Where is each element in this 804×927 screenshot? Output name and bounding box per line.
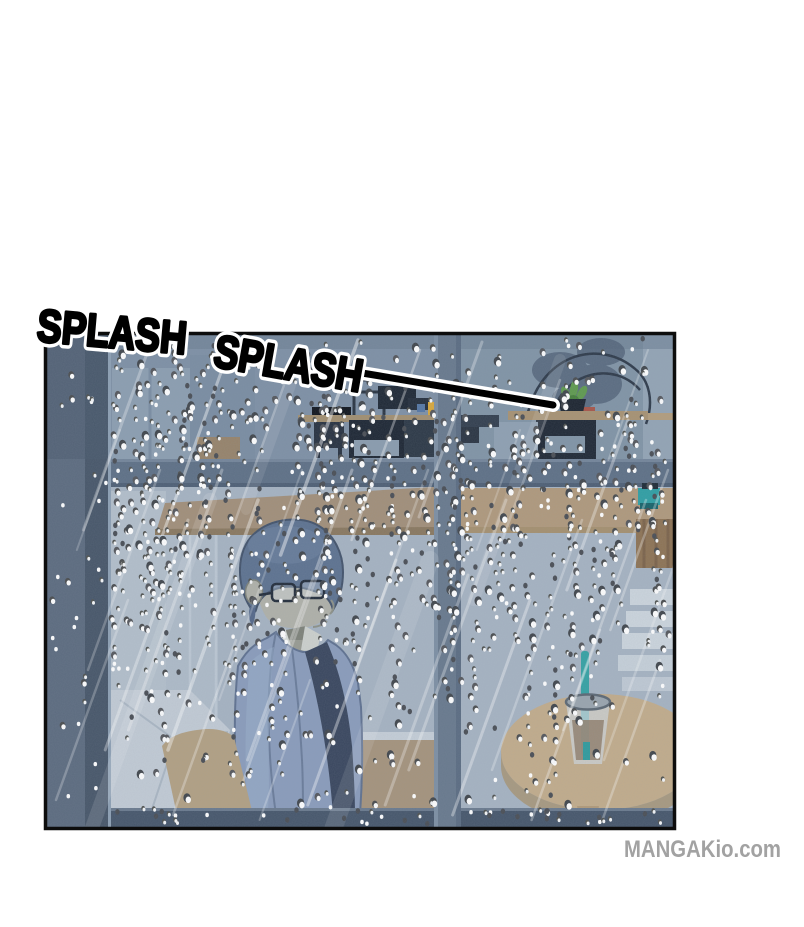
svg-text:MANGAKio.com: MANGAKio.com xyxy=(624,836,781,863)
